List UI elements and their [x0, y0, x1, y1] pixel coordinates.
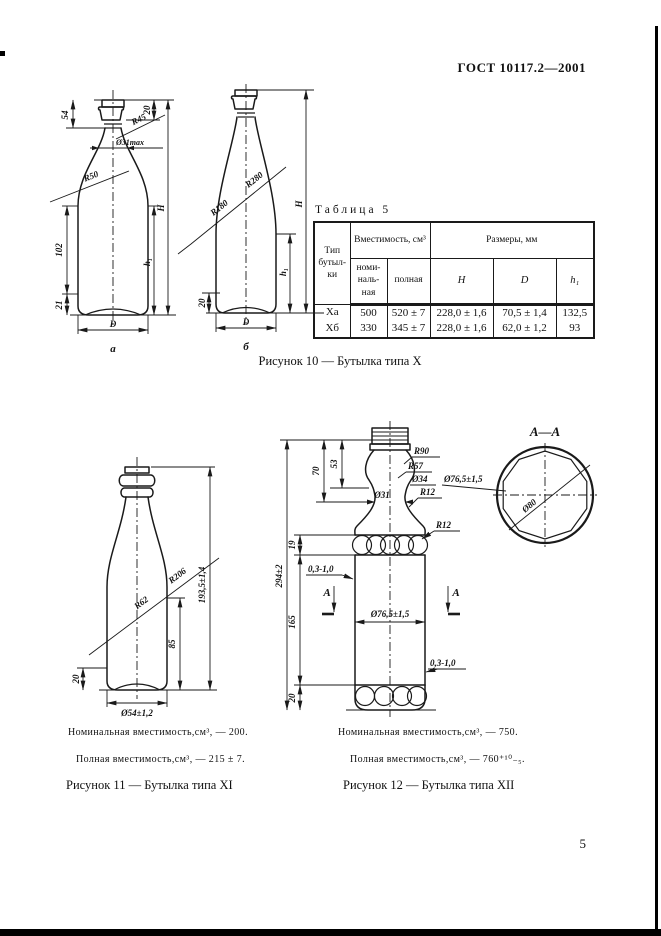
dim-54: 54 [60, 110, 70, 120]
dim-D: D [242, 317, 250, 327]
table-row: Хб 330 345 ± 7 228,0 ± 1,6 62,0 ± 1,2 93 [314, 321, 594, 338]
document-page: ГОСТ 10117.2—2001 54 [0, 0, 661, 936]
bottle-xi-dimensions: 193,5±1,4 85 20 Ø54±1,2 R62 R206 [71, 467, 219, 718]
dim-D: D [109, 319, 117, 329]
scan-artifact-right-edge [655, 26, 658, 936]
section-aa-label: А—А [529, 424, 561, 439]
dim-H: H [294, 200, 304, 209]
dim-dia31max: Ø31max [115, 138, 144, 147]
cell-h1: 93 [556, 321, 594, 338]
col-header-sizes: Размеры, мм [430, 222, 594, 258]
table5: Тип бутыл-ки Вместимость, см³ Размеры, м… [313, 221, 595, 339]
cell-type: Хб [314, 321, 350, 338]
dim-r12-upper: R12 [419, 487, 436, 497]
dim-dia80: Ø80 [519, 497, 539, 515]
fig12-full-note: Полная вместимость,см³, — 760⁺¹⁰₋₅. [350, 754, 525, 765]
figure12-caption: Рисунок 12 — Бутылка типа XII [343, 778, 514, 793]
doc-header: ГОСТ 10117.2—2001 [430, 60, 586, 76]
wall-thickness-upper: 0,3-1,0 [308, 564, 334, 574]
dim-dia765-mid: Ø76,5±1,5 [370, 609, 410, 619]
dim-dia54: Ø54±1,2 [120, 708, 153, 718]
table-row: Ха 500 520 ± 7 228,0 ± 1,6 70,5 ± 1,4 13… [314, 304, 594, 321]
cell-D: 62,0 ± 1,2 [493, 321, 556, 338]
figure11-caption: Рисунок 11 — Бутылка типа XI [66, 778, 233, 793]
figure12-drawing: 294±2 19 165 20 53 70 R90 R57 Ø34 Ø76,5± [268, 418, 660, 720]
dim-height: 193,5±1,4 [197, 566, 207, 603]
dim-294: 294±2 [274, 564, 284, 588]
cell-H: 228,0 ± 1,6 [430, 304, 493, 321]
dim-h1: h₁ [142, 258, 152, 266]
dim-r57: R57 [407, 461, 424, 471]
col-header-D: D [493, 258, 556, 304]
dim-dia765-top: Ø76,5±1,5 [443, 474, 483, 484]
dim-dia31: Ø31 [373, 490, 390, 500]
dim-r50: R50 [81, 169, 100, 184]
cell-type: Ха [314, 304, 350, 321]
figure11-drawing: 193,5±1,4 85 20 Ø54±1,2 R62 R206 [55, 445, 260, 723]
cell-H: 228,0 ± 1,6 [430, 321, 493, 338]
col-header-h1: h₁ [556, 258, 594, 304]
dim-102: 102 [54, 243, 64, 257]
bottle-a-dimensions: 54 102 21 20 h₁ H Ø31max R45 R50 D [50, 100, 174, 355]
col-header-type: Тип бутыл-ки [314, 222, 350, 304]
cell-full: 345 ± 7 [387, 321, 430, 338]
table5-block: Таблица 5 Тип бутыл-ки Вместимость, см³ … [313, 204, 595, 339]
dim-20: 20 [197, 298, 207, 309]
col-header-H: H [430, 258, 493, 304]
dim-70: 70 [311, 466, 321, 476]
section-mark-a-right: A [451, 587, 459, 599]
bottle-b-label: б [243, 341, 249, 353]
cell-nominal: 500 [350, 304, 387, 321]
cell-h1: 132,5 [556, 304, 594, 321]
dim-53: 53 [329, 459, 339, 469]
dim-dia34: Ø34 [411, 474, 428, 484]
dim-20: 20 [287, 693, 297, 704]
section-aa-view: А—А Ø80 [493, 424, 597, 547]
fig12-nominal-note: Номинальная вместимость,см³, — 750. [338, 727, 518, 738]
col-header-nominal: номи-наль-ная [350, 258, 387, 304]
dim-85: 85 [167, 639, 177, 649]
col-header-full: полная [387, 258, 430, 304]
cell-nominal: 330 [350, 321, 387, 338]
fig11-nominal-note: Номинальная вместимость,см³, — 200. [68, 727, 248, 738]
figure10-caption: Рисунок 10 — Бутылка типа X [180, 354, 500, 369]
col-header-capacity: Вместимость, см³ [350, 222, 430, 258]
dim-r90: R90 [413, 446, 430, 456]
dim-19: 19 [287, 540, 297, 550]
dim-H: H [156, 204, 166, 213]
dim-21: 21 [54, 301, 64, 311]
cell-full: 520 ± 7 [387, 304, 430, 321]
fig11-full-note: Полная вместимость,см³, — 215 ± 7. [76, 754, 245, 765]
dim-20: 20 [71, 674, 81, 685]
figure10-drawing: 54 102 21 20 h₁ H Ø31max R45 R50 D [28, 82, 338, 364]
dim-h1: h₁ [278, 268, 288, 276]
section-mark-a-left: A [322, 587, 330, 599]
cell-D: 70,5 ± 1,4 [493, 304, 556, 321]
dim-165: 165 [287, 615, 297, 629]
dim-r62: R62 [131, 594, 150, 612]
page-number: 5 [560, 836, 586, 852]
scan-artifact-bottom-edge [0, 929, 661, 936]
dim-r12-lower: R12 [435, 520, 452, 530]
table5-title: Таблица 5 [315, 204, 595, 216]
bottle-a-label: а [110, 343, 116, 355]
wall-thickness-lower: 0,3-1,0 [430, 658, 456, 668]
scan-artifact-left-mark [0, 51, 5, 56]
